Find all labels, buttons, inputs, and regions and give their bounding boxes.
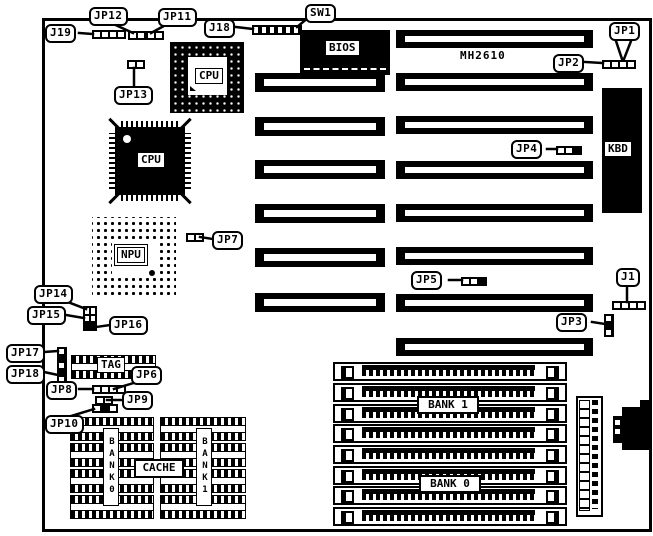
qfp-leads-bottom [121,195,179,201]
kbd-label: KBD [605,142,631,156]
pin1-dot-icon [123,135,131,143]
slot-opening [405,210,584,216]
label-j18: J18 [204,19,235,38]
slot-opening [264,79,376,86]
jp7-jumper [186,233,204,242]
label-jp5: JP5 [411,271,442,290]
isa-slot-left [255,248,385,267]
jp13-jumper [127,60,145,69]
slot-opening [405,253,584,259]
label-jp10: JP10 [45,415,84,434]
memory-bank0-label: BANK 0 [419,475,481,493]
j19-connector [92,30,126,39]
label-jp1: JP1 [609,22,640,41]
bios-socket-dashed-line [304,68,386,70]
isa-slot-left [255,73,385,92]
power-header-pads [579,400,590,511]
slot-opening [264,254,376,261]
jp10-jumper [92,404,118,413]
cpu-socket: CPU [170,42,244,113]
board-model-text: MH2610 [460,49,506,62]
simm-socket [333,362,567,381]
at-power-connector-tab [613,416,623,443]
label-jp18: JP18 [6,365,45,384]
cache-label: CACHE [134,459,184,478]
at-power-connector-step [640,400,649,408]
at-power-connector [622,407,649,450]
slot-opening [264,123,376,130]
notch [615,420,620,425]
simm-socket [333,424,567,443]
kbd-connector: KBD [602,88,642,213]
label-jp6: JP6 [131,366,162,385]
jp14-jp15-jp16-block [83,306,97,331]
label-jp17: JP17 [6,344,45,363]
isa-slot-right [396,116,593,134]
qfp-leads-top [121,121,179,127]
slot-opening [405,300,584,306]
label-jp7: JP7 [212,231,243,250]
cpu-qfp-label: CPU [137,152,165,168]
jp11-jumper [146,31,164,40]
label-sw1: SW1 [305,4,336,23]
jp3-jumper [604,314,614,337]
slot-opening [264,299,376,306]
label-jp16: JP16 [109,316,148,335]
tag-label: TAG [97,357,125,373]
sw1-dip-switch [252,25,302,35]
slot-opening [405,79,584,85]
cache-bank0-vertical-label: BANK0 [103,428,119,506]
isa-slot-left [255,117,385,136]
slot-opening [405,167,584,173]
bios-label: BIOS [326,41,359,55]
motherboard-diagram: BIOS MH2610 CPU CPU NPU KBD [0,0,653,536]
qfp-leads-right [185,133,191,189]
isa-slot-right [396,73,593,91]
npu-socket: NPU [92,217,176,297]
jp12-jumper [128,31,146,40]
simm-socket [333,445,567,464]
label-j1: J1 [616,268,640,287]
isa-slot-right [396,338,593,356]
slot-opening [264,210,376,217]
isa-slot-right [396,247,593,265]
label-jp4: JP4 [511,140,542,159]
jp17-jp18-strip [57,347,67,384]
isa-slot-left [255,160,385,179]
power-header-pins [592,400,598,509]
jp5-jumper [461,277,487,286]
jp1-jumper [618,60,636,69]
cache-bank1-vertical-label: BANK1 [196,428,212,506]
label-jp12: JP12 [89,7,128,26]
notch [615,429,620,434]
label-jp8: JP8 [46,381,77,400]
label-jp14: JP14 [34,285,73,304]
slot-opening [264,166,376,173]
label-jp11: JP11 [158,8,197,27]
label-jp2: JP2 [553,54,584,73]
slot-opening [405,344,584,350]
simm-socket [333,507,567,526]
memory-bank1-label: BANK 1 [417,396,479,414]
isa-slot-right [396,30,593,48]
cpu-socket-center: CPU [188,57,227,95]
isa-slot-left [255,293,385,312]
isa-slot-left [255,204,385,223]
slot-opening [405,122,584,128]
isa-slot-right [396,204,593,222]
npu-label: NPU [117,247,145,263]
label-jp13: JP13 [114,86,153,105]
label-j19: J19 [45,24,76,43]
label-jp15: JP15 [27,306,66,325]
label-jp9: JP9 [122,391,153,410]
npu-center: NPU [112,240,158,278]
pin1-arrow-icon [190,86,196,91]
jp4-jumper [556,146,582,155]
j1-connector [612,301,646,310]
cpu-label: CPU [195,68,223,84]
npu-pin1-dot-icon [149,270,155,276]
label-jp3: JP3 [556,313,587,332]
slot-opening [405,36,584,42]
qfp-leads-left [109,133,115,189]
bios-chip: BIOS [300,30,390,75]
power-header [576,396,603,517]
cpu-qfp-chip: CPU [115,127,185,195]
isa-slot-right [396,161,593,179]
isa-slot-right [396,294,593,312]
